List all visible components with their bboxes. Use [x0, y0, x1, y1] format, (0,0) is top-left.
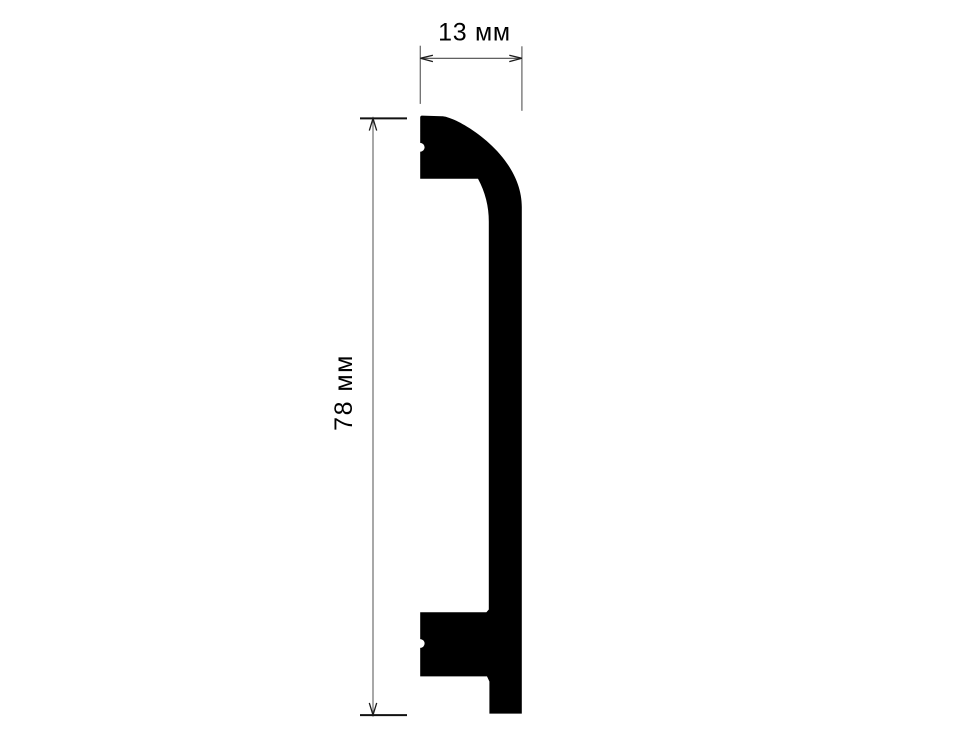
svg-text:13 мм: 13 мм: [438, 19, 511, 47]
svg-text:78 мм: 78 мм: [330, 354, 358, 431]
